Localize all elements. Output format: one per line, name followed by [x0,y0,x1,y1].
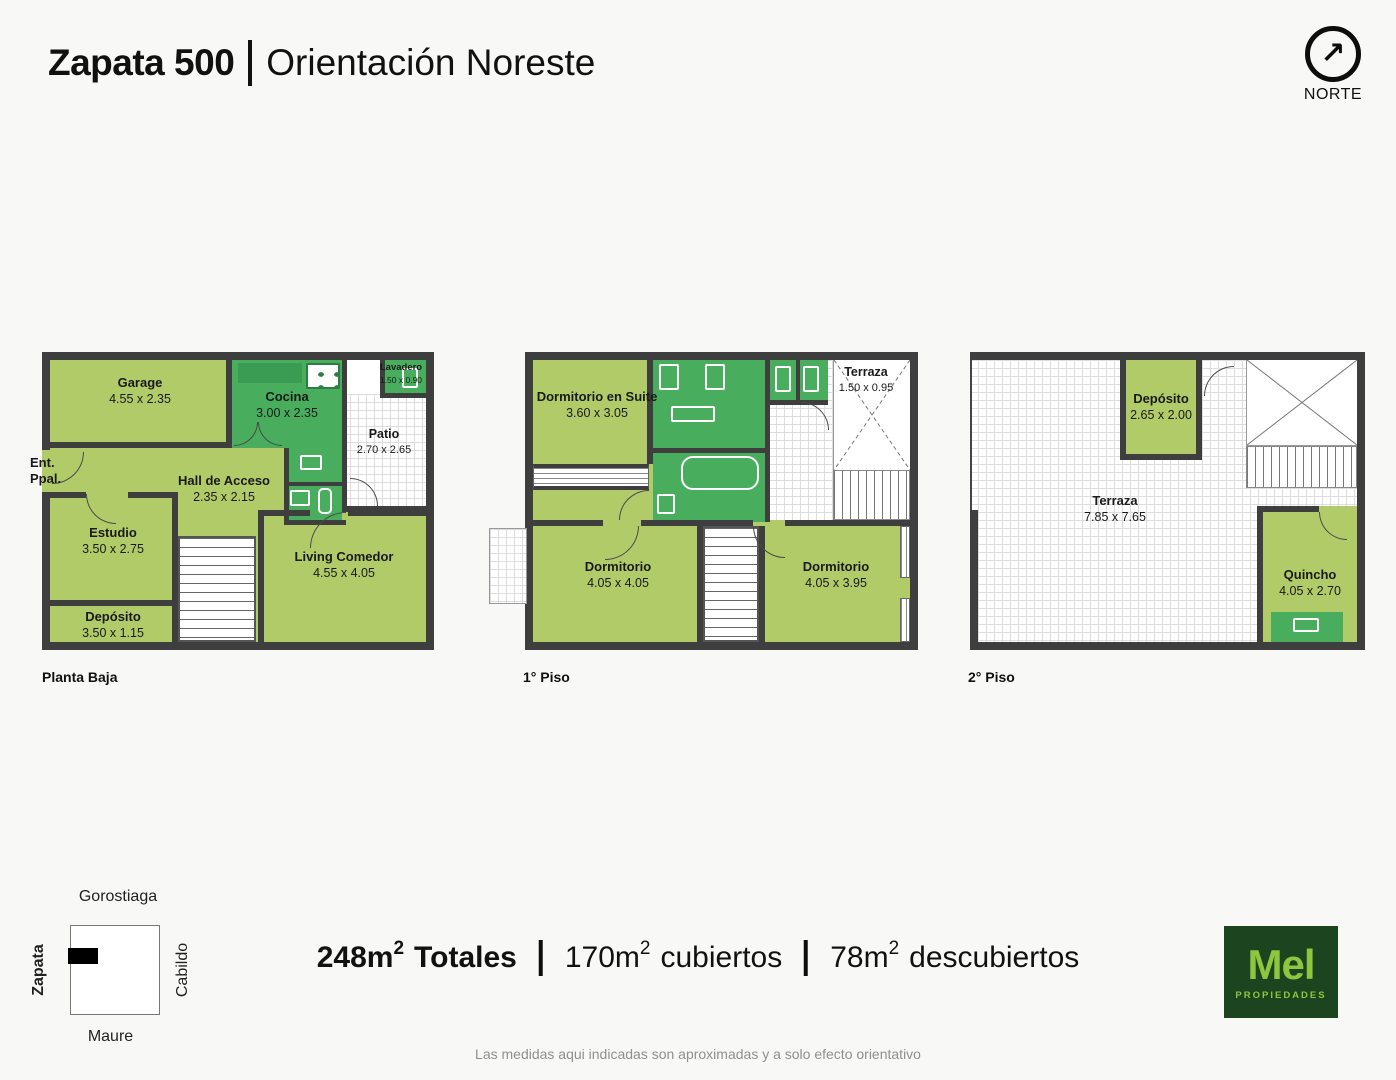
wall-segment [653,448,765,453]
wall-segment [348,510,426,516]
street-label-gorostiaga: Gorostiaga [48,888,188,906]
railing [970,360,972,510]
bidet-icon [318,488,332,514]
north-arrow-icon: ↗ [1305,26,1361,82]
street-label-zapata: Zapata [28,925,50,1015]
sink-icon [290,490,310,506]
wall-segment [50,492,86,498]
door-arc [605,526,639,560]
uncovered-area: 78m2 descubiertos [830,941,1079,975]
kitchen-counter-icon [238,363,302,383]
wall-segment [1257,506,1319,512]
title-divider [248,40,252,86]
room-label-quincho: Quincho 4.05 x 2.70 [1263,566,1357,600]
disclaimer-text: Las medidas aqui indicadas son aproximad… [0,1046,1396,1062]
address-title: Zapata 500 [48,42,234,84]
door-arc [619,490,649,520]
wall-segment [970,510,978,642]
block-map [70,925,160,1015]
room-label-terraza: Terraza 1.50 x 0.95 [823,364,909,395]
page-title: Zapata 500 Orientación Noreste [48,40,595,86]
property-marker [68,948,98,964]
wall-segment [796,360,800,400]
street-label-maure: Maure [48,1028,173,1046]
wall-segment [258,510,264,642]
toilet-icon [300,455,322,470]
wall-segment [50,442,232,448]
terraza-stairs [833,470,910,520]
suite-window-hatch [533,464,649,490]
room-label-entrada: Ent. Ppal. [30,455,88,488]
wall-segment [765,360,770,522]
floor-caption-pb: Planta Baja [42,669,117,685]
agency-logo: Mel PROPIEDADES [1224,926,1338,1018]
shower-icon [775,366,791,392]
wall-segment [128,492,178,498]
wall-segment [258,510,310,516]
void-cross-icon [1247,360,1357,445]
logo-subtitle: PROPIEDADES [1235,990,1326,1001]
room-label-dormitorio-2: Dormitorio 4.05 x 3.95 [771,558,901,592]
window-hatch [900,598,910,642]
orientation-title: Orientación Noreste [266,42,595,84]
wall-segment [50,600,172,606]
floor-caption-1p: 1° Piso [523,669,570,685]
door-arc [86,494,116,524]
plan-planta-baja: Garage 4.55 x 2.35 Cocina 3.00 x 2.35 La… [42,352,434,650]
area-totals: 248m2 Totales 170m2 cubiertos 78m2 descu… [317,940,1080,976]
plan-primer-piso: Dormitorio en Suite 3.60 x 3.05 Terraza … [525,352,918,650]
covered-area: 170m2 cubiertos [565,941,782,975]
total-area: 248m2 Totales [317,941,517,975]
washer-icon [659,364,679,390]
floor-caption-2p: 2° Piso [968,669,1015,685]
room-label-deposito: Depósito 3.50 x 1.15 [52,608,174,642]
wall-segment [284,482,346,486]
north-label: NORTE [1290,86,1376,104]
wall-segment [785,520,910,526]
floorplan-page: Zapata 500 Orientación Noreste ↗ NORTE [0,0,1396,1080]
grill-icon [1293,618,1319,632]
window-hatch [900,526,910,578]
logo-brand: Mel [1247,944,1314,986]
north-indicator: ↗ NORTE [1290,26,1376,104]
room-label-terraza-2p: Terraza 7.85 x 7.65 [1050,492,1180,526]
room-label-cocina: Cocina 3.00 x 2.35 [232,388,342,422]
bathtub-icon [681,456,759,490]
room-label-deposito-2p: Depósito 2.65 x 2.00 [1120,390,1202,424]
room-label-patio: Patio 2.70 x 2.65 [342,426,426,457]
room-label-lavadero: Lavadero 1.50 x 0.90 [378,362,424,386]
room-label-suite: Dormitorio en Suite 3.60 x 3.05 [535,388,659,422]
sink-icon [803,366,819,392]
sink-icon [705,364,725,390]
vanity-icon [671,406,715,422]
room-label-dormitorio-1: Dormitorio 4.05 x 4.05 [543,558,693,592]
room-label-garage: Garage 4.55 x 2.35 [60,374,220,408]
wall-segment [768,400,828,405]
wall-segment [533,520,603,526]
street-label-cabildo: Cabildo [172,925,194,1015]
room-label-living: Living Comedor 4.55 x 4.05 [270,548,418,582]
stove-icon [306,363,340,389]
bay-window [489,528,527,604]
plan-segundo-piso: Depósito 2.65 x 2.00 Terraza 7.85 x 7.65… [970,352,1365,650]
toilet-icon [657,494,675,514]
room-label-hall: Hall de Acceso 2.35 x 2.15 [174,472,274,506]
totals-divider [539,940,543,976]
room-label-estudio: Estudio 3.50 x 2.75 [56,524,170,558]
staircase [178,536,256,642]
staircase [1246,446,1357,488]
totals-divider [804,940,808,976]
staircase [703,526,759,642]
stair-void [1246,360,1357,446]
